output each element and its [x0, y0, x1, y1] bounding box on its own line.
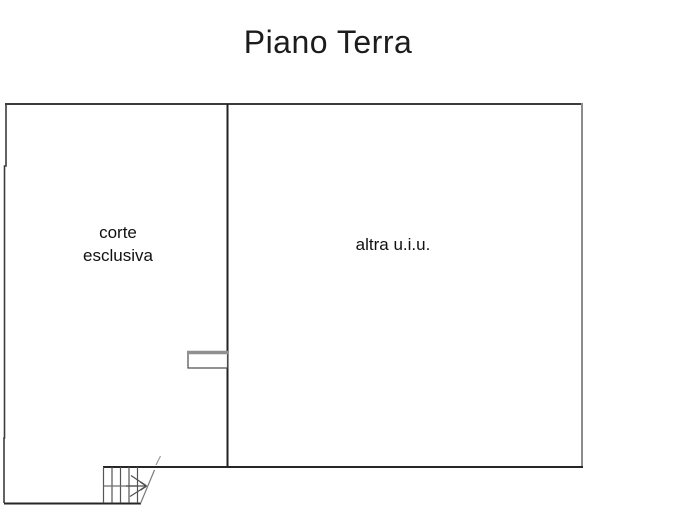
room-label-line2: esclusiva [28, 244, 208, 267]
door-threshold [187, 353, 228, 369]
stair-break-line-dash [156, 456, 161, 465]
outer-wall [4, 103, 583, 504]
room-label-altra-uiu: altra u.i.u. [303, 233, 483, 256]
room-label-line1: corte [28, 221, 208, 244]
staircase-symbol [104, 456, 161, 504]
stair-break-line [141, 470, 155, 504]
wall-left [4, 104, 6, 503]
threshold-box [188, 353, 228, 369]
floor-plan-page: Piano Terra corte esclusiva altra u.i.u. [0, 0, 692, 518]
room-label-corte-esclusiva: corte esclusiva [28, 221, 208, 267]
page-title: Piano Terra [244, 25, 413, 59]
